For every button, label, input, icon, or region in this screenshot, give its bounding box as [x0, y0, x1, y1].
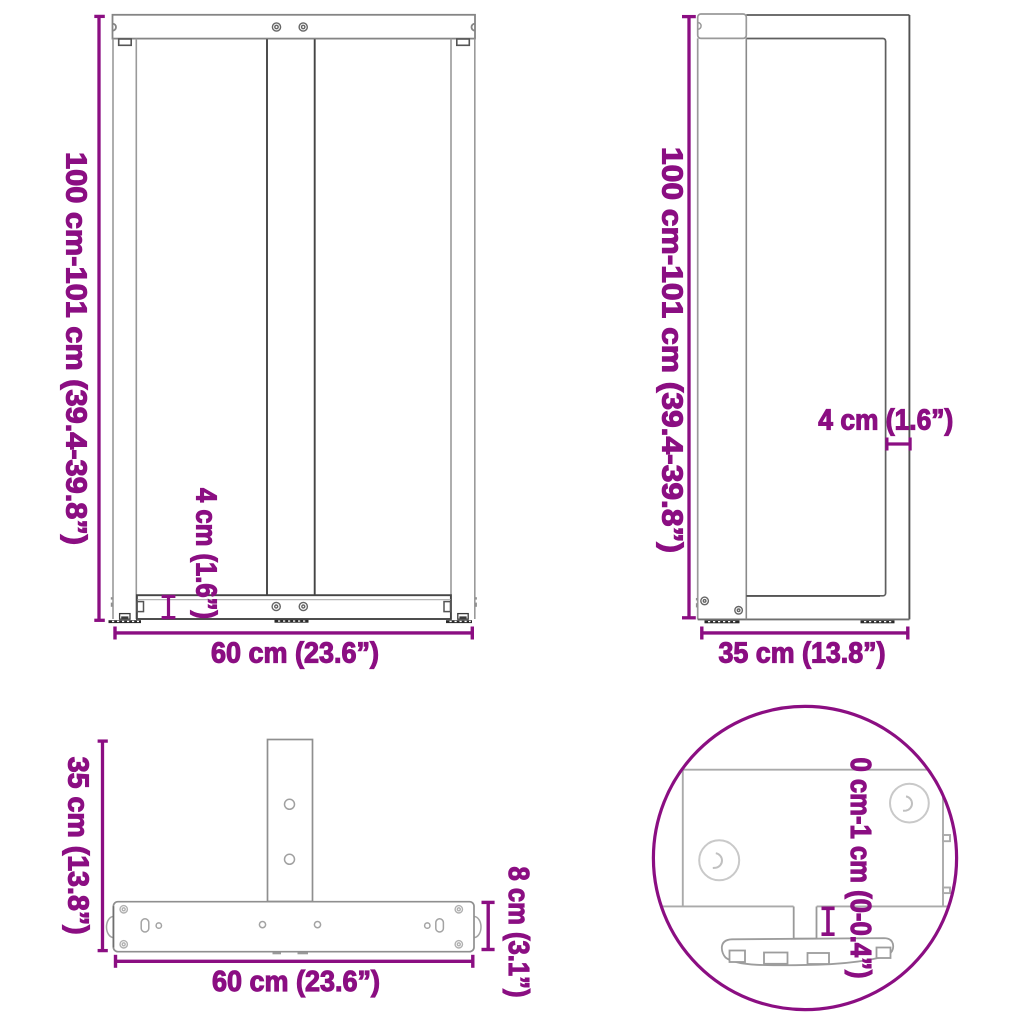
svg-text:100 cm-101 cm (39.4-39.8”): 100 cm-101 cm (39.4-39.8”)	[60, 152, 92, 545]
svg-text:60 cm (23.6”): 60 cm (23.6”)	[212, 966, 380, 998]
svg-text:0 cm-1 cm (0-0.4”): 0 cm-1 cm (0-0.4”)	[844, 758, 876, 979]
svg-text:60 cm (23.6”): 60 cm (23.6”)	[211, 638, 379, 670]
svg-text:100 cm-101 cm (39.4-39.8”): 100 cm-101 cm (39.4-39.8”)	[656, 147, 688, 553]
svg-text:4 cm (1.6”): 4 cm (1.6”)	[190, 488, 222, 619]
svg-text:35 cm (13.8”): 35 cm (13.8”)	[719, 638, 886, 670]
svg-text:4 cm (1.6”): 4 cm (1.6”)	[818, 405, 953, 437]
svg-text:8 cm (3.1”): 8 cm (3.1”)	[502, 867, 534, 998]
svg-text:35 cm (13.8”): 35 cm (13.8”)	[62, 757, 94, 935]
